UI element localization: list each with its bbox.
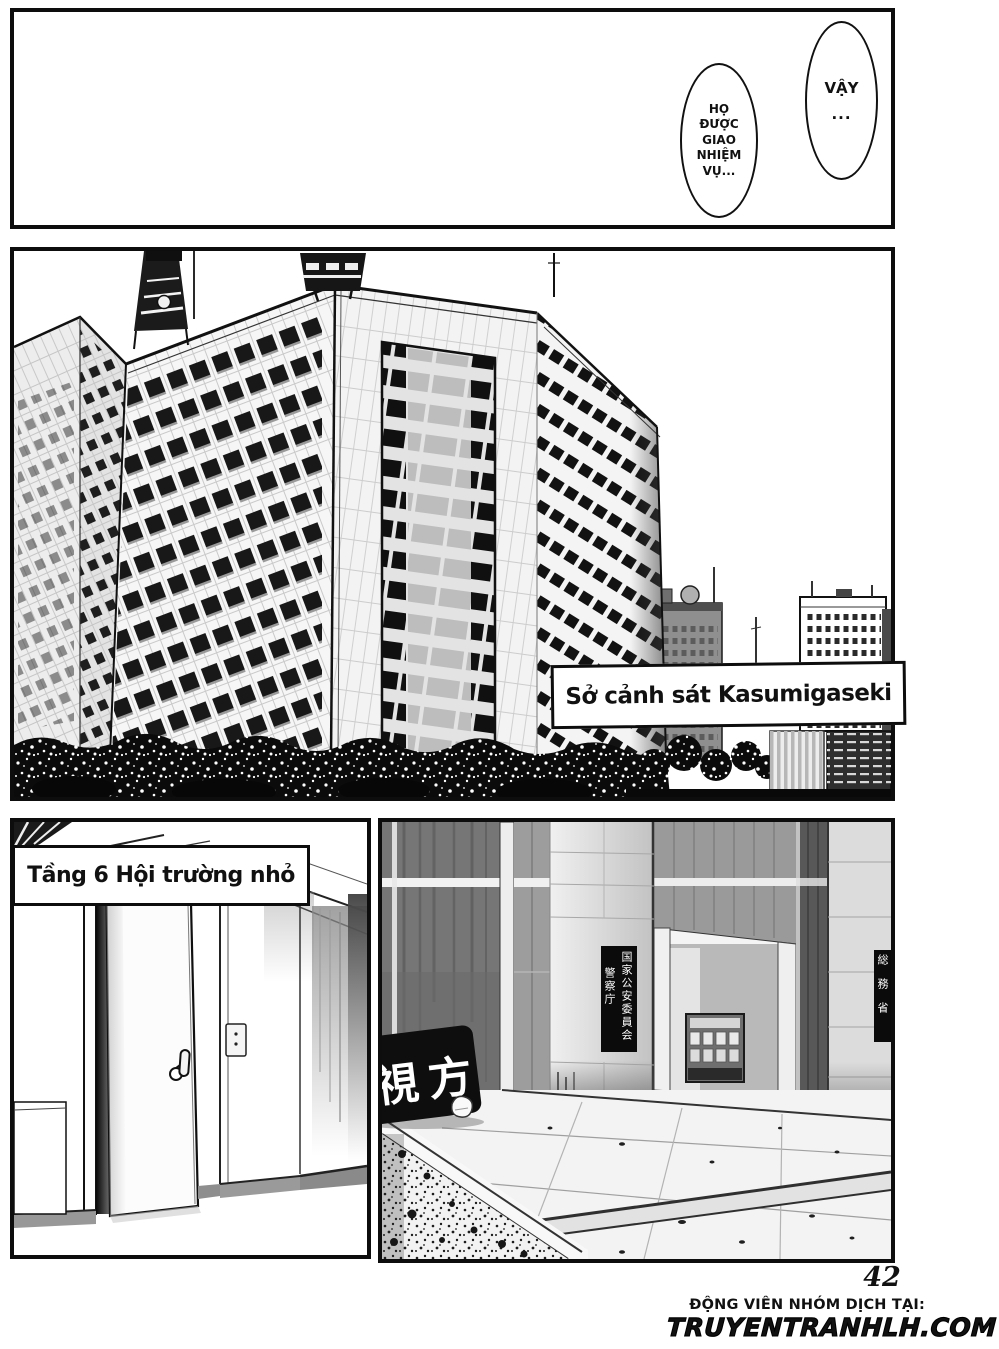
caption-building: Sở cảnh sát Kasumigaseki bbox=[551, 661, 907, 729]
bubble-text: VỤ... bbox=[703, 164, 736, 180]
pillar-sign-col-right: 国家公安委員会 bbox=[618, 951, 635, 1047]
manga-page: VẬY ... HỌ ĐƯỢC GIAO NHIỆM VỤ... bbox=[0, 0, 999, 1349]
cabinet bbox=[14, 1102, 66, 1214]
page-number: 42 bbox=[858, 1262, 906, 1293]
vending-machine bbox=[686, 1014, 744, 1082]
caption-building-text: Sở cảnh sát Kasumigaseki bbox=[565, 680, 892, 710]
speech-bubble-right: VẬY ... bbox=[805, 21, 878, 180]
footer-credit: ĐỘNG VIÊN NHÓM DỊCH TẠI: bbox=[689, 1297, 925, 1313]
right-pillar-sign: 総務省 bbox=[874, 950, 891, 1042]
bubble-text: ĐƯỢC bbox=[699, 117, 738, 133]
bubble-text: GIAO bbox=[702, 133, 736, 149]
speech-bubble-left: HỌ ĐƯỢC GIAO NHIỆM VỤ... bbox=[680, 63, 758, 218]
left-tower bbox=[14, 317, 126, 756]
paper-debris bbox=[452, 1096, 473, 1117]
bubble-text: HỌ bbox=[709, 102, 729, 118]
bubble-text: ... bbox=[831, 105, 851, 123]
pillar-sign: 国家公安委員会 警察庁 bbox=[601, 946, 637, 1052]
entrance-doors bbox=[654, 822, 796, 1108]
footer-site: TRUYENTRANHLH.COM bbox=[667, 1313, 998, 1342]
panel-entrance: 視方 国家公安委員会 警察庁 総務省 bbox=[378, 818, 895, 1263]
bubble-text: VẬY bbox=[824, 79, 858, 97]
right-pillar-sign-text: 総務省 bbox=[874, 954, 891, 1042]
caption-floor-text: Tầng 6 Hội trường nhỏ bbox=[27, 863, 295, 888]
panel-dialogue bbox=[10, 8, 895, 229]
mullion-wide bbox=[500, 822, 514, 1094]
bubble-text: NHIỆM bbox=[697, 148, 742, 164]
main-face-checker bbox=[331, 285, 537, 756]
caption-floor: Tầng 6 Hội trường nhỏ bbox=[12, 845, 310, 906]
pillar-sign-col-left: 警察庁 bbox=[601, 967, 618, 1047]
door bbox=[106, 852, 201, 1223]
